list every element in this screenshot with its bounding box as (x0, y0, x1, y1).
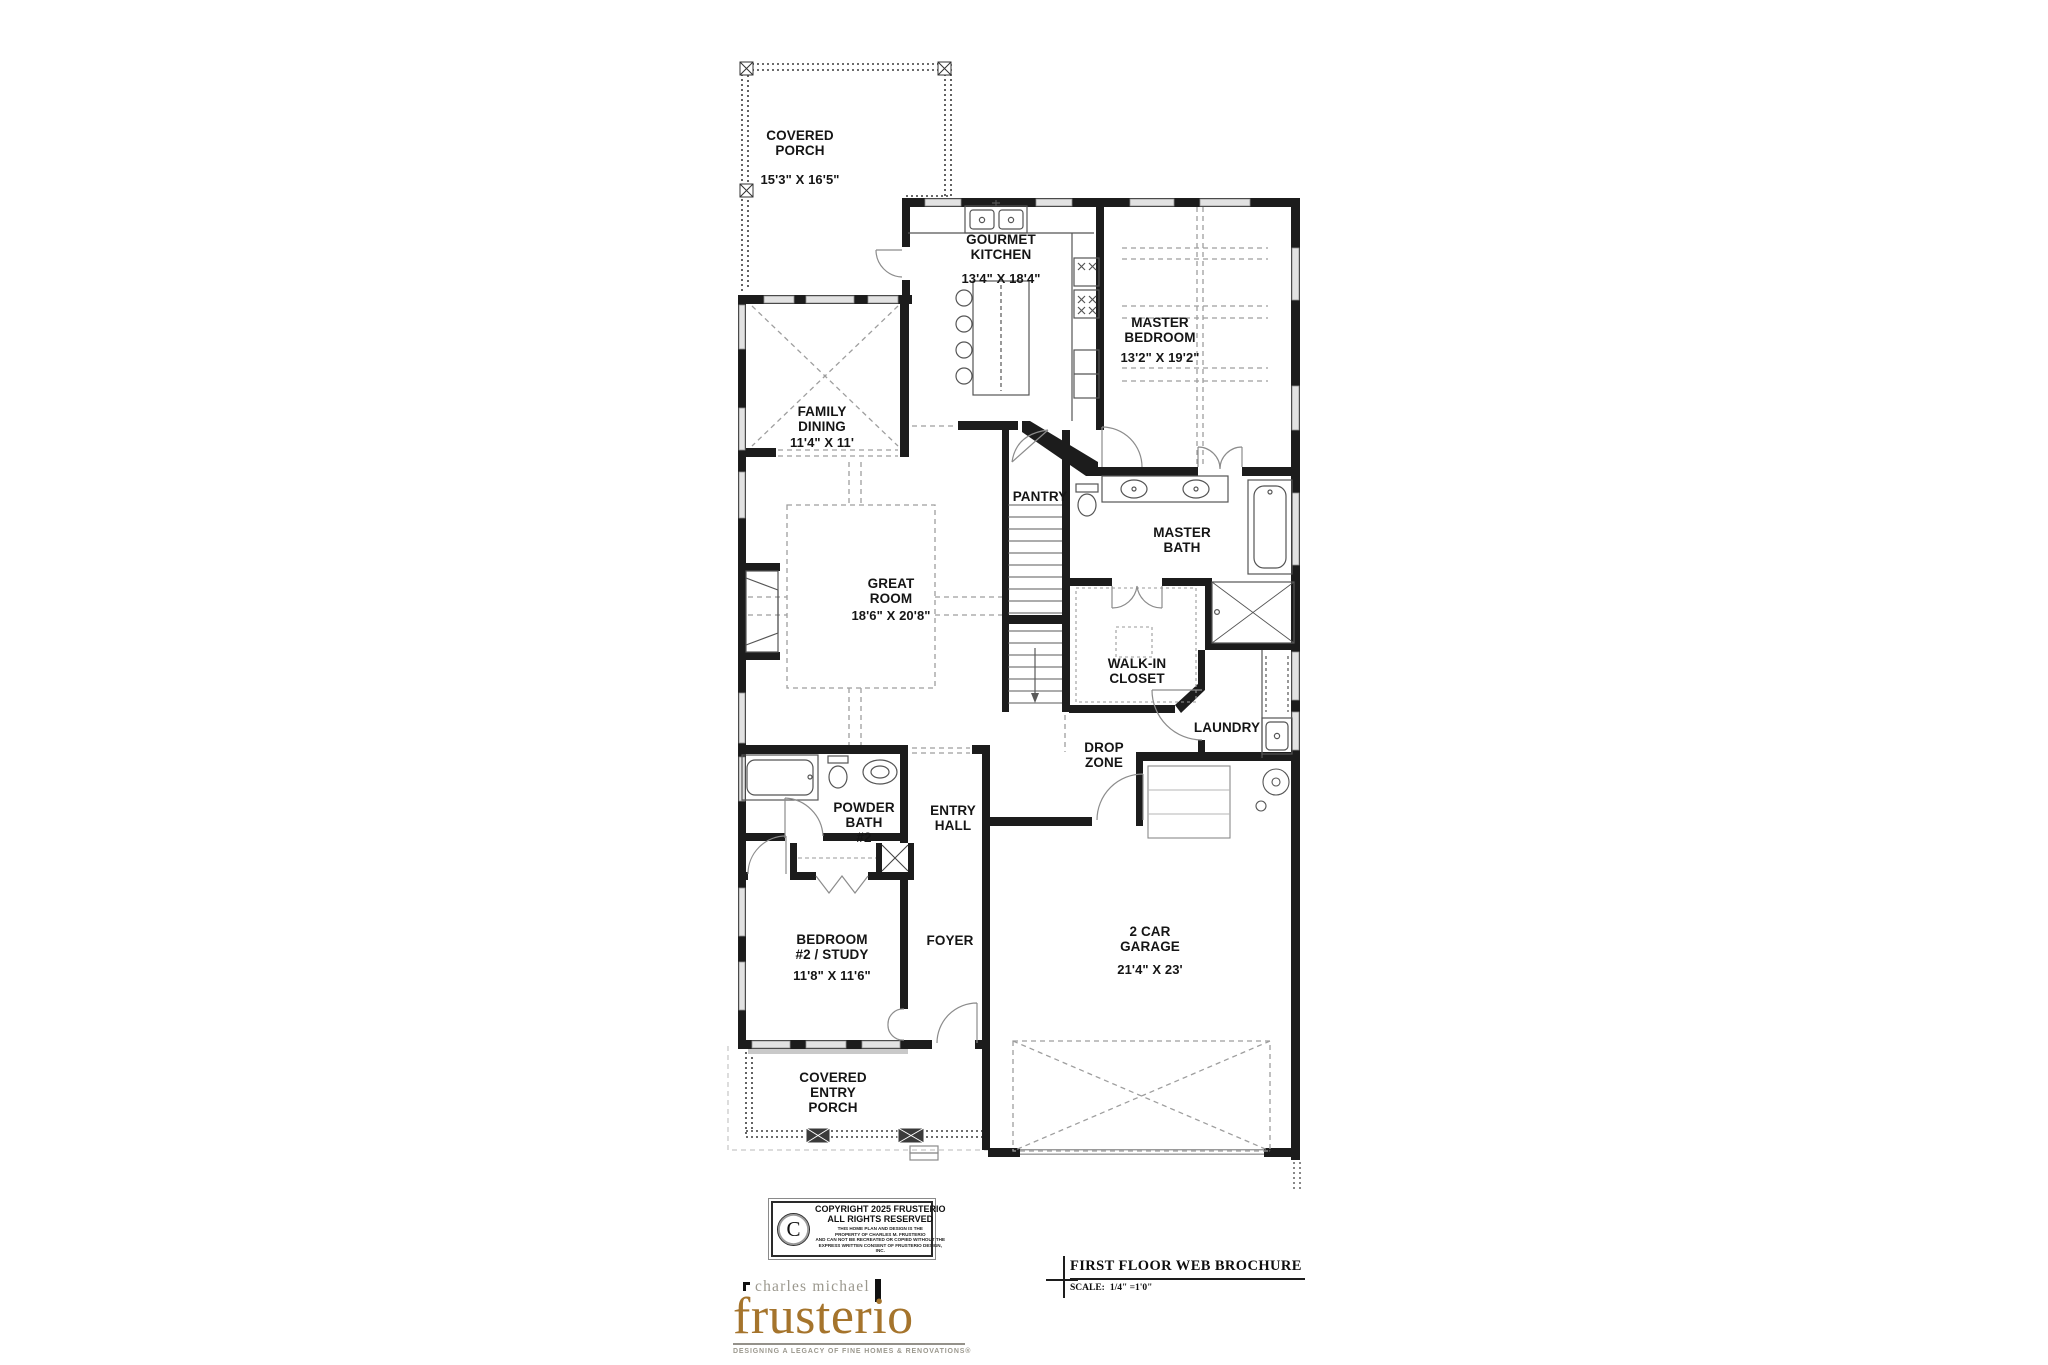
room-label-foyer: FOYER (926, 933, 973, 948)
room-label-laundry: LAUNDRY (1194, 720, 1260, 735)
window-icons (739, 199, 1299, 1155)
room-label-gourmet-kitchen: GOURMET KITCHEN 13'4" X 18'4" (961, 232, 1040, 286)
fireplace-icon (746, 563, 780, 660)
title-block-vertical-rule (1063, 1256, 1065, 1298)
room-label-family-dining: FAMILY DINING 11'4" X 11' (790, 404, 854, 450)
copyright-line2: ALL RIGHTS RESERVED (815, 1214, 946, 1224)
room-label-covered-entry-porch: COVERED ENTRY PORCH (799, 1070, 866, 1115)
copyright-fine-print: THIS HOME PLAN AND DESIGN IS THE PROPERT… (815, 1226, 946, 1254)
room-label-entry-hall: ENTRY HALL (930, 803, 976, 833)
room-label-garage: 2 CAR GARAGE 21'4" X 23' (1117, 924, 1183, 977)
floor-plan-drawing (0, 0, 2048, 1365)
frusterio-logo: charles michael frusterio DESIGNING A LE… (733, 1279, 967, 1355)
logo-name: frusterio (733, 1296, 967, 1338)
copyright-block: C COPYRIGHT 2025 FRUSTERIO ALL RIGHTS RE… (768, 1198, 936, 1260)
room-label-covered-porch: COVERED PORCH 15'3" X 16'5" (760, 128, 839, 187)
room-label-master-bath: MASTER BATH (1153, 525, 1211, 555)
room-label-drop-zone: DROP ZONE (1084, 740, 1123, 770)
sheet-scale: SCALE:1/4" =1'0" (1070, 1283, 1152, 1293)
scale-label: SCALE: (1070, 1283, 1105, 1293)
copyright-symbol-icon: C (777, 1213, 810, 1246)
scale-value: 1/4" =1'0" (1110, 1283, 1153, 1293)
room-label-walk-in-closet: WALK-IN CLOSET (1108, 656, 1166, 686)
stairs (1008, 505, 1062, 703)
logo-tagline: DESIGNING A LEGACY OF FINE HOMES & RENOV… (733, 1348, 967, 1355)
room-label-master-bedroom: MASTER BEDROOM 13'2" X 19'2" (1120, 315, 1199, 365)
room-label-pantry: PANTRY (1013, 489, 1068, 504)
copyright-line1: COPYRIGHT 2025 FRUSTERIO (815, 1204, 946, 1214)
room-label-powder-bath-2: POWDER BATH #2 (833, 800, 894, 845)
room-label-bedroom-2-study: BEDROOM #2 / STUDY 11'8" X 11'6" (793, 932, 871, 983)
interior-walls (738, 207, 1300, 1009)
floor-plan-page: COVERED PORCH 15'3" X 16'5" GOURMET KITC… (0, 0, 2048, 1365)
room-label-great-room: GREAT ROOM 18'6" X 20'8" (851, 576, 930, 623)
sheet-title: FIRST FLOOR WEB BROCHURE (1070, 1258, 1305, 1280)
